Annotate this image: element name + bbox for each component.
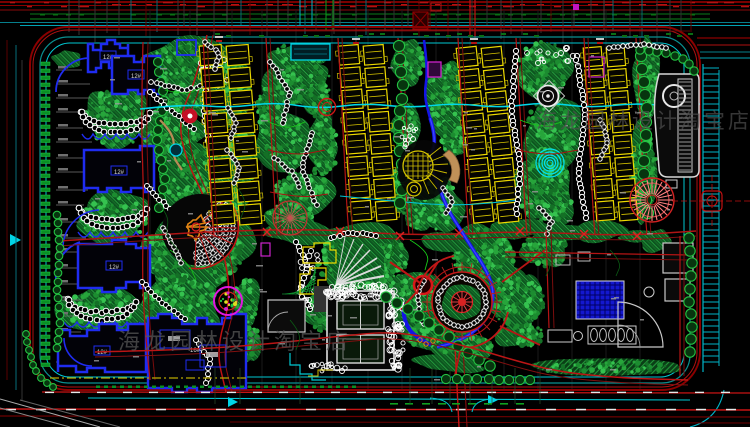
svg-text:12#: 12# bbox=[131, 74, 142, 80]
svg-text:12#: 12# bbox=[114, 170, 125, 176]
svg-text:12#: 12# bbox=[109, 265, 120, 271]
svg-text:12#: 12# bbox=[97, 350, 108, 356]
